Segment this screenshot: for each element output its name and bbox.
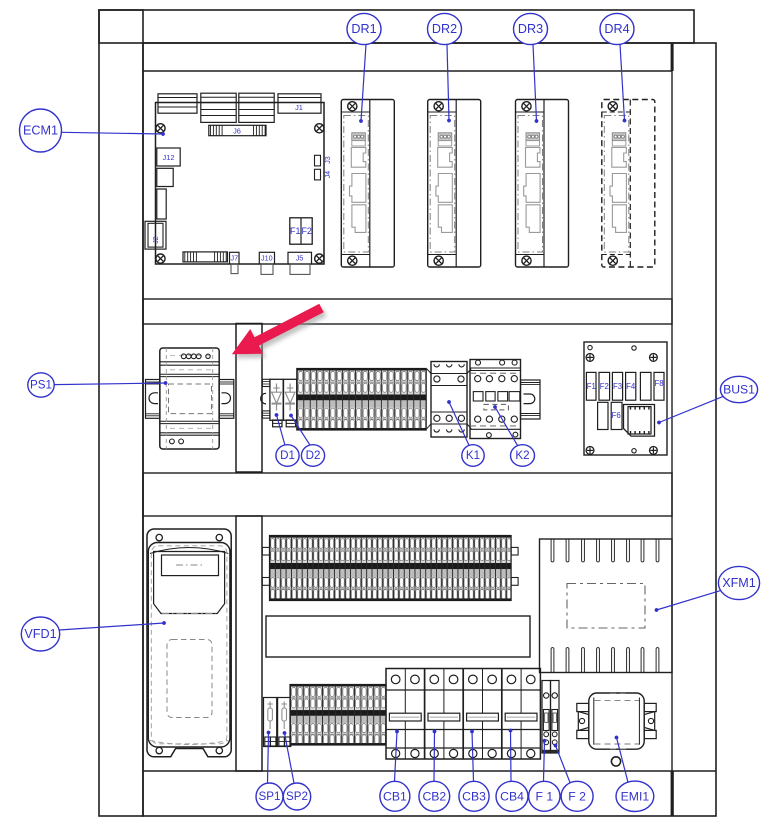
svg-text:SP1: SP1 <box>259 790 281 803</box>
svg-text:CB3: CB3 <box>462 789 486 803</box>
svg-text:D2: D2 <box>306 449 321 462</box>
svg-text:CB4: CB4 <box>500 789 524 803</box>
svg-text:F8: F8 <box>654 379 663 388</box>
svg-text:DR1: DR1 <box>351 22 376 36</box>
svg-text:CB1: CB1 <box>383 789 407 803</box>
svg-text:F3: F3 <box>613 382 622 391</box>
svg-text:F2: F2 <box>600 382 609 391</box>
svg-text:DR3: DR3 <box>518 22 543 36</box>
svg-text:J6: J6 <box>233 126 241 135</box>
svg-text:ECM1: ECM1 <box>23 124 58 138</box>
svg-text:F6: F6 <box>612 411 621 420</box>
svg-text:CB2: CB2 <box>422 789 446 803</box>
svg-text:DR4: DR4 <box>604 22 629 36</box>
svg-text:BUS1: BUS1 <box>723 383 755 397</box>
svg-text:J2: J2 <box>151 236 160 244</box>
svg-text:J5: J5 <box>296 253 304 262</box>
svg-text:F 2: F 2 <box>568 789 586 803</box>
svg-text:VFD1: VFD1 <box>24 627 56 641</box>
svg-text:EMI1: EMI1 <box>621 789 650 803</box>
svg-text:F1: F1 <box>290 226 301 236</box>
svg-text:J4: J4 <box>325 171 332 179</box>
svg-text:K2: K2 <box>515 449 529 462</box>
svg-text:J1: J1 <box>295 103 303 112</box>
svg-text:J10: J10 <box>261 253 273 262</box>
svg-text:SP2: SP2 <box>286 790 308 803</box>
svg-text:DR2: DR2 <box>432 22 457 36</box>
svg-text:XFM1: XFM1 <box>722 576 756 590</box>
svg-text:D1: D1 <box>280 449 295 462</box>
svg-text:PS1: PS1 <box>30 379 52 392</box>
svg-text:F4: F4 <box>626 382 636 391</box>
svg-text:J3: J3 <box>325 156 332 164</box>
svg-text:J12: J12 <box>163 153 175 162</box>
svg-text:K1: K1 <box>466 449 480 462</box>
svg-text:F2: F2 <box>301 226 312 236</box>
svg-text:F1: F1 <box>587 382 596 391</box>
svg-text:J7: J7 <box>231 253 239 262</box>
svg-text:F 1: F 1 <box>535 789 553 803</box>
